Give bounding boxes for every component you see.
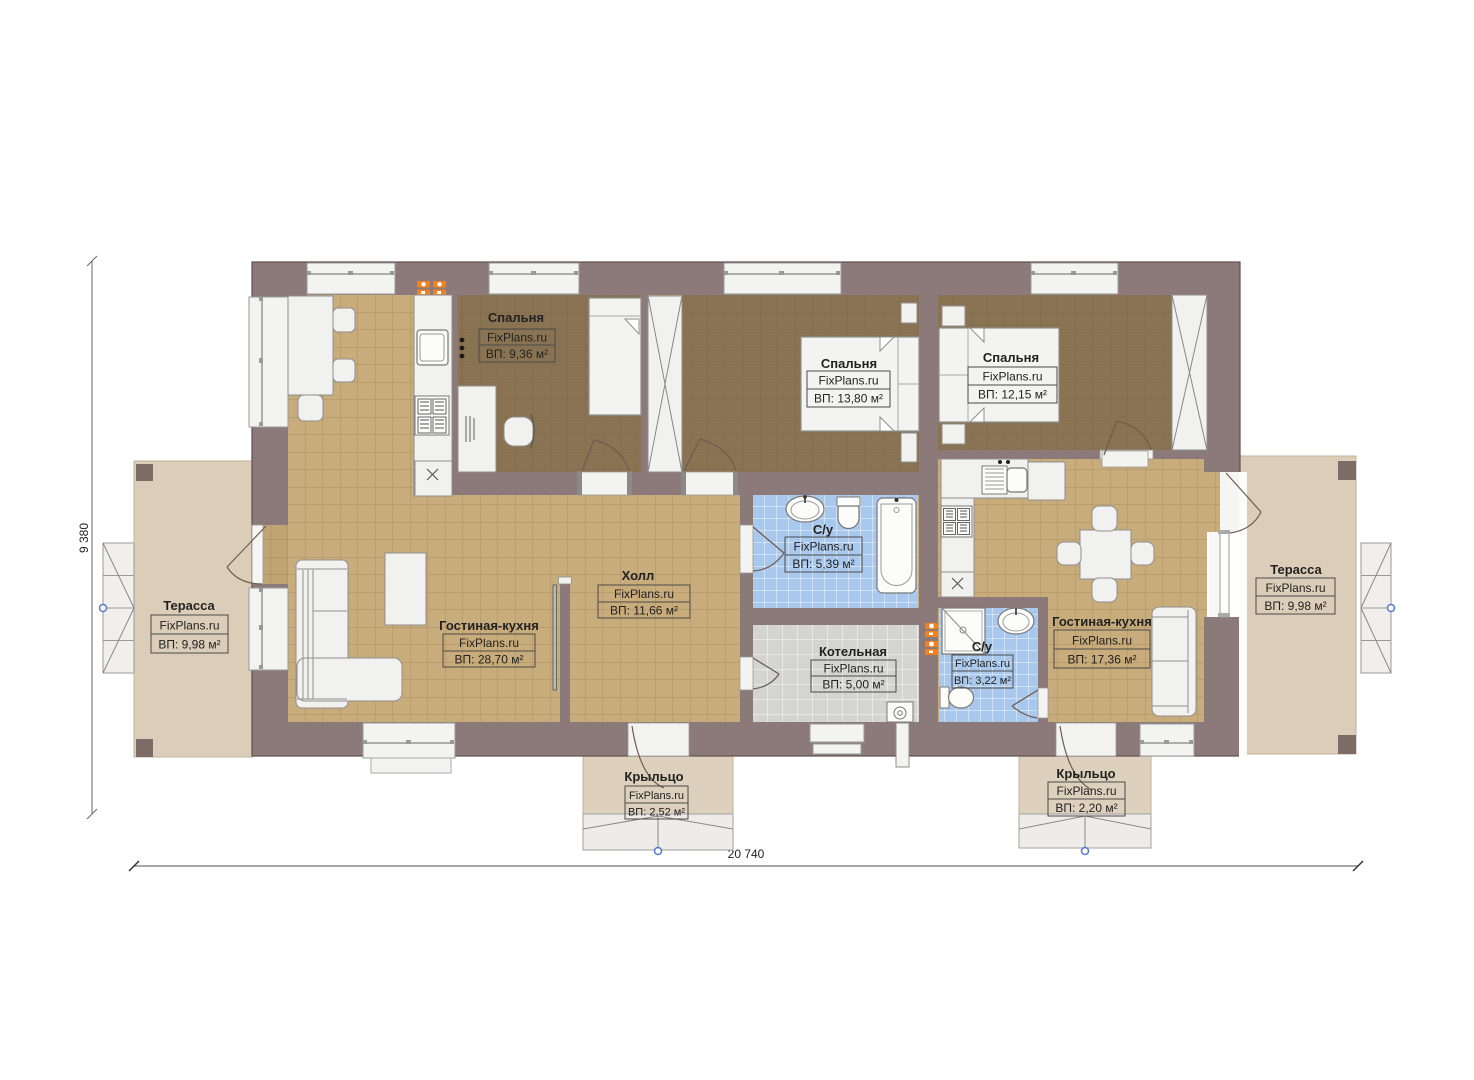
svg-text:С/у: С/у bbox=[813, 522, 834, 537]
svg-text:Холл: Холл bbox=[622, 568, 655, 583]
svg-text:FixPlans.ru: FixPlans.ru bbox=[614, 587, 674, 601]
svg-text:Спальня: Спальня bbox=[821, 356, 877, 371]
svg-text:FixPlans.ru: FixPlans.ru bbox=[1265, 581, 1325, 595]
svg-text:FixPlans.ru: FixPlans.ru bbox=[982, 370, 1042, 384]
svg-text:Крыльцо: Крыльцо bbox=[1056, 766, 1115, 781]
svg-text:С/у: С/у bbox=[972, 639, 993, 654]
svg-text:9 380: 9 380 bbox=[77, 523, 91, 553]
svg-text:Котельная: Котельная bbox=[819, 644, 887, 659]
svg-text:FixPlans.ru: FixPlans.ru bbox=[629, 790, 684, 802]
svg-text:ВП: 5,00 м²: ВП: 5,00 м² bbox=[822, 678, 884, 692]
svg-text:Терасса: Терасса bbox=[1270, 562, 1322, 577]
svg-text:FixPlans.ru: FixPlans.ru bbox=[955, 658, 1010, 670]
svg-text:FixPlans.ru: FixPlans.ru bbox=[1072, 634, 1132, 648]
svg-text:Спальня: Спальня bbox=[488, 310, 544, 325]
svg-text:FixPlans.ru: FixPlans.ru bbox=[487, 331, 547, 345]
svg-text:ВП: 3,22 м²: ВП: 3,22 м² bbox=[954, 675, 1011, 687]
svg-text:FixPlans.ru: FixPlans.ru bbox=[1056, 784, 1116, 798]
svg-text:ВП: 12,15 м²: ВП: 12,15 м² bbox=[978, 388, 1047, 402]
svg-text:ВП: 5,39 м²: ВП: 5,39 м² bbox=[792, 557, 854, 571]
svg-text:ВП: 9,98 м²: ВП: 9,98 м² bbox=[1264, 599, 1326, 613]
svg-text:ВП: 11,66 м²: ВП: 11,66 м² bbox=[610, 604, 678, 618]
svg-text:ВП: 2,52 м²: ВП: 2,52 м² bbox=[628, 807, 685, 819]
svg-text:ВП: 2,20 м²: ВП: 2,20 м² bbox=[1055, 801, 1117, 815]
svg-text:Крыльцо: Крыльцо bbox=[624, 769, 683, 784]
svg-text:ВП: 13,80 м²: ВП: 13,80 м² bbox=[814, 392, 883, 406]
svg-text:Терасса: Терасса bbox=[163, 598, 215, 613]
svg-text:ВП: 9,98 м²: ВП: 9,98 м² bbox=[158, 638, 220, 652]
svg-text:FixPlans.ru: FixPlans.ru bbox=[818, 374, 878, 388]
svg-text:ВП: 9,36 м²: ВП: 9,36 м² bbox=[486, 347, 548, 361]
svg-text:Спальня: Спальня bbox=[983, 350, 1039, 365]
svg-text:ВП: 17,36 м²: ВП: 17,36 м² bbox=[1068, 653, 1137, 667]
svg-text:ВП: 28,70 м²: ВП: 28,70 м² bbox=[455, 653, 524, 667]
svg-text:Гостиная-кухня: Гостиная-кухня bbox=[439, 618, 539, 633]
svg-text:FixPlans.ru: FixPlans.ru bbox=[459, 636, 519, 650]
svg-text:FixPlans.ru: FixPlans.ru bbox=[823, 662, 883, 676]
svg-text:FixPlans.ru: FixPlans.ru bbox=[159, 619, 219, 633]
svg-text:Гостиная-кухня: Гостиная-кухня bbox=[1052, 614, 1152, 629]
svg-text:FixPlans.ru: FixPlans.ru bbox=[793, 540, 853, 554]
